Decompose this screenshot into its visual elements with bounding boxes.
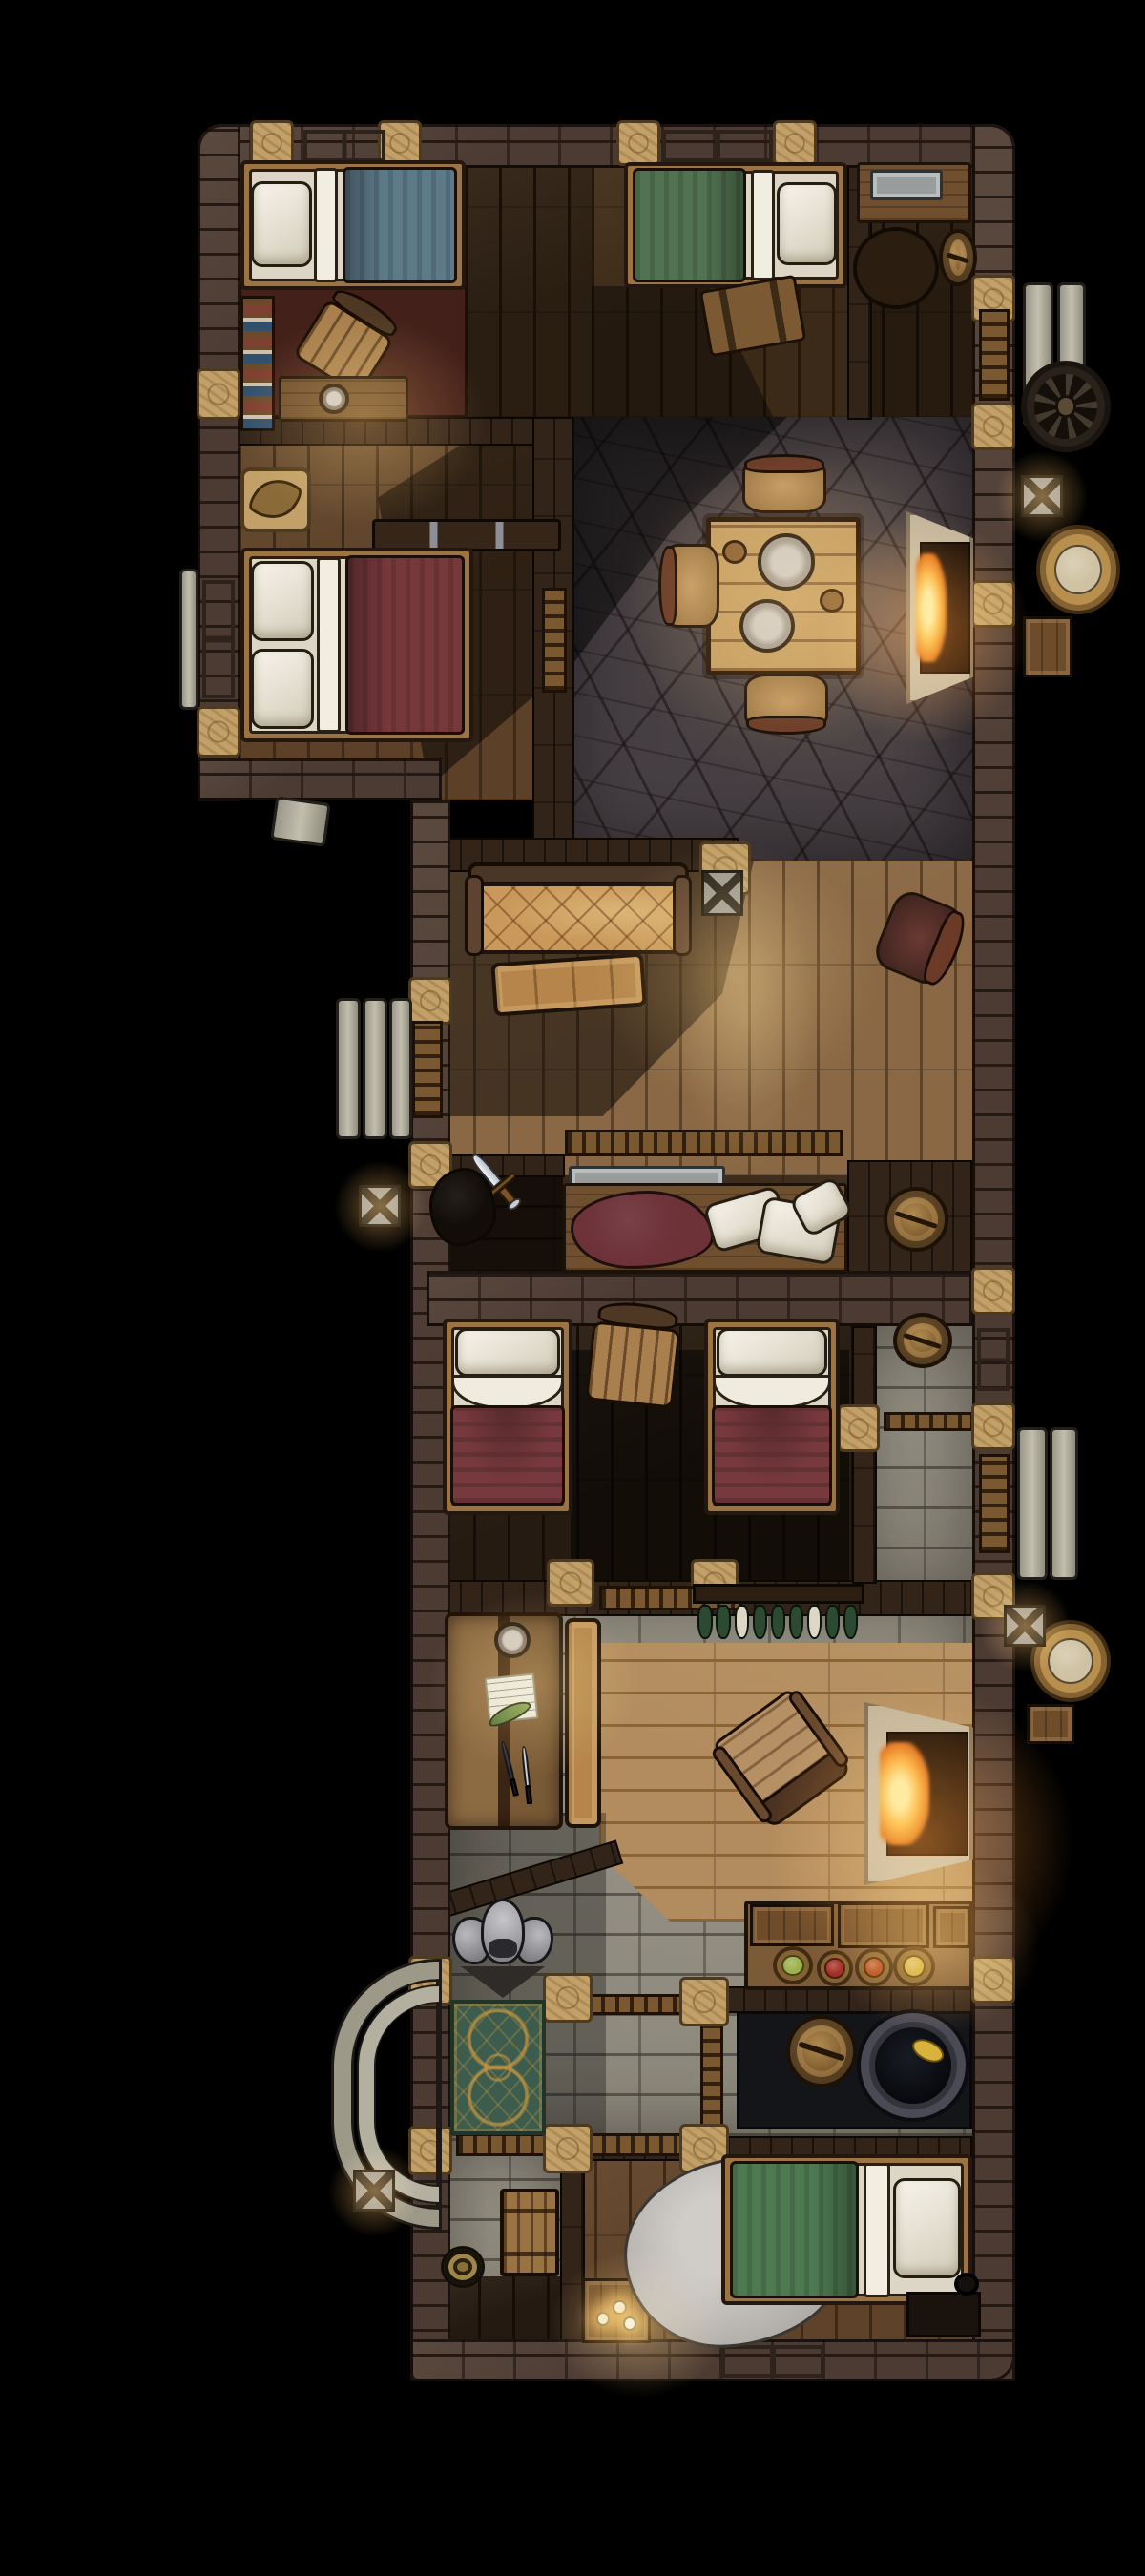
- basket-east-upper: [1036, 525, 1120, 614]
- bench-tavern: [565, 1618, 601, 1828]
- bed-twin-west-blanket: [450, 1405, 565, 1506]
- teacup-bar: [494, 1622, 531, 1658]
- wall-twin-east: [852, 1326, 877, 1584]
- post-shelf-east: [838, 1404, 880, 1452]
- bed-west-double-pillow-1: [251, 561, 314, 641]
- chair-hall-north-back: [744, 454, 824, 473]
- chair-twin-room-seat: [585, 1320, 680, 1408]
- railing-lounge: [565, 1130, 843, 1156]
- bed-west-double-blanket: [345, 555, 465, 735]
- crate-east-upper: [1023, 616, 1072, 677]
- basket-greens-contents: [781, 1955, 804, 1976]
- window-bedroom-nw: [303, 130, 385, 162]
- table-stone-hall-plate-large-1: [758, 533, 816, 590]
- keystone-east-3: [971, 580, 1015, 628]
- armor-display: [452, 1899, 553, 1998]
- bench-lounge: [490, 952, 647, 1016]
- wine-bottle-rack: [693, 1584, 864, 1643]
- post-entry-ne: [679, 1977, 729, 2026]
- crate-kitchen-1: [750, 1904, 834, 1946]
- door-east-upper: [979, 309, 1010, 401]
- post-entry-sw: [543, 2124, 593, 2173]
- steps-east-lower-2: [1050, 1427, 1078, 1580]
- fireplace-tavern-fire: [880, 1742, 929, 1845]
- pot-bed-south: [954, 2273, 979, 2296]
- table-stone-hall-plate-small-2: [820, 589, 844, 613]
- wine-bottle-rack-bottle-7: [807, 1605, 822, 1639]
- desk-alcove-glass: [870, 170, 943, 200]
- wine-bottle-rack-bottle-2: [716, 1605, 730, 1639]
- tavern-inn-battlemap: [0, 0, 1145, 2576]
- keystone-west-1: [197, 368, 240, 420]
- bed-twin-west: [443, 1319, 572, 1515]
- keystone-west-3: [408, 977, 452, 1025]
- wine-bottle-rack-bottle-8: [825, 1605, 840, 1639]
- cart-wheel-east: [1021, 361, 1111, 452]
- bed-south-sheet: [864, 2163, 890, 2297]
- crate-with-candles-candle-2: [613, 2300, 627, 2315]
- keystone-north-1: [250, 120, 294, 166]
- wine-bottle-rack-bottle-1: [697, 1605, 712, 1639]
- basket-east-upper-contents: [1054, 545, 1101, 595]
- knife-bar-2-handle: [526, 1786, 532, 1804]
- wall-lamp-lounge: [701, 870, 743, 916]
- couch-lounge-arm-right: [673, 875, 692, 956]
- cauldron-kitchen-broth: [875, 2027, 951, 2104]
- chair-hall-south: [739, 670, 834, 735]
- steps-west-3: [389, 998, 412, 1139]
- fireplace-stone-hall-fire: [916, 553, 947, 661]
- basket-tomatoes: [855, 1948, 893, 1986]
- barrel-nook-shelf: [884, 1187, 948, 1252]
- rope-coil: [441, 2246, 485, 2288]
- knife-bar-2-blade: [521, 1746, 531, 1788]
- railing-entry-north: [584, 1994, 685, 2015]
- fireplace-stone-hall: [906, 511, 973, 704]
- keystone-west-2: [197, 706, 240, 758]
- armor-display-visor: [489, 1939, 517, 1959]
- chair-hall-west: [658, 538, 723, 634]
- sack-on-floor: [429, 1168, 496, 1246]
- bed-west-double-pillow-2: [251, 649, 314, 729]
- table-alcove: [853, 227, 939, 309]
- basket-greens: [773, 1946, 813, 1984]
- railing-window-shelf: [884, 1412, 973, 1431]
- wine-bottle-rack-bottle-9: [843, 1605, 858, 1639]
- bed-south-pillow-1: [893, 2178, 961, 2278]
- bed-northwest-pillow-1: [251, 181, 312, 267]
- bed-south: [721, 2154, 972, 2305]
- bed-twin-east-blanket: [712, 1405, 832, 1506]
- blanket-nook: [571, 1191, 714, 1269]
- bed-twin-east-pillow: [717, 1328, 826, 1377]
- wine-bottle-rack-bottle-5: [771, 1605, 785, 1639]
- table-stone-hall: [706, 517, 861, 675]
- teacup-northwest: [319, 384, 349, 414]
- post-twin-west: [547, 1559, 594, 1607]
- bed-northeast: [624, 162, 847, 288]
- keystone-north-4: [773, 120, 817, 166]
- bed-west-double: [240, 548, 473, 742]
- chair-hall-west-back: [658, 546, 677, 626]
- crate-kitchen-2: [838, 1902, 929, 1948]
- keystone-east-5: [971, 1402, 1015, 1450]
- window-bedroom-ne: [662, 130, 773, 162]
- table-stone-hall-plate-large-2: [739, 599, 795, 653]
- barrel-alcove: [939, 229, 977, 286]
- wall-lamp-west-south: [353, 2170, 395, 2212]
- bed-northeast-sheet: [751, 170, 775, 281]
- wall-lamp-east-lower: [1004, 1605, 1046, 1647]
- basket-grain-contents: [903, 1955, 926, 1978]
- wall-south-bedroom-w: [198, 758, 442, 800]
- bed-northwest: [240, 160, 466, 290]
- window-bedroom-s: [721, 2345, 824, 2378]
- bed-northeast-blanket: [633, 168, 747, 281]
- window-tavern-east: [977, 1328, 1010, 1391]
- couch-lounge-cushion: [473, 883, 683, 954]
- steps-east-lower-1: [1017, 1427, 1048, 1580]
- wall-lamp-west-mid: [359, 1185, 401, 1227]
- door-west: [412, 1021, 443, 1118]
- steps-west-1: [336, 998, 361, 1139]
- bed-south-blanket: [730, 2161, 859, 2298]
- couch-lounge-arm-left: [465, 875, 484, 956]
- wall-east: [972, 124, 1015, 2381]
- bookshelf-northwest: [240, 296, 275, 431]
- keystone-north-3: [616, 120, 660, 166]
- basket-east-lower-contents: [1048, 1638, 1093, 1684]
- chair-hall-north: [737, 454, 832, 517]
- basket-grain: [893, 1946, 935, 1986]
- crate-east-lower: [1027, 1704, 1074, 1744]
- chair-hall-south-back: [746, 716, 826, 735]
- door-stone-hall: [542, 588, 567, 693]
- knife-bar-1-handle: [510, 1778, 518, 1797]
- barrel-window-shelf: [893, 1313, 952, 1368]
- couch-lounge: [471, 868, 685, 956]
- door-entry: [500, 2189, 559, 2276]
- wall-plaque-bedroom-w: [240, 467, 311, 532]
- railing-entry-east: [700, 2015, 723, 2131]
- ledge-west: [179, 569, 198, 710]
- crate-with-candles-candle-3: [623, 2316, 637, 2331]
- floor-hall-nw: [465, 160, 593, 418]
- wine-bottle-rack-rack-bar: [693, 1584, 864, 1604]
- bed-northwest-blanket: [343, 167, 458, 284]
- armor-display-base: [460, 1966, 545, 1998]
- crate-kitchen-3: [933, 1906, 971, 1948]
- window-bedroom-w: [202, 580, 235, 698]
- chest-bedroom-w: [372, 519, 561, 551]
- chair-twin-room: [579, 1302, 689, 1413]
- wine-bottle-rack-bottle-6: [789, 1605, 803, 1639]
- wall-west-upper: [198, 124, 240, 801]
- bed-northwest-sheet: [314, 168, 338, 282]
- bed-northeast-pillow-1: [777, 182, 837, 265]
- cauldron-kitchen: [857, 2009, 969, 2122]
- wine-bottle-rack-bottle-4: [753, 1605, 767, 1639]
- bed-twin-east: [704, 1319, 840, 1515]
- rug-entry: [450, 2000, 546, 2135]
- keystone-east-7: [971, 1956, 1015, 2004]
- fireplace-tavern: [864, 1702, 973, 1885]
- door-mat-west: [270, 796, 331, 847]
- keystone-east-2: [971, 403, 1015, 450]
- wall-lamp-east-upper: [1021, 475, 1063, 517]
- table-stone-hall-plate-small-1: [722, 540, 747, 564]
- basket-berries-contents: [824, 1958, 844, 1978]
- wine-bottle-rack-bottle-3: [735, 1605, 749, 1639]
- door-east-lower: [979, 1454, 1010, 1553]
- basket-berries: [817, 1950, 853, 1986]
- bed-twin-west-pillow: [455, 1328, 560, 1377]
- crate-with-candles-candle-1: [596, 2312, 611, 2326]
- bed-west-double-sheet: [317, 557, 342, 733]
- barrel-kitchen: [786, 2015, 857, 2088]
- table-bed-south: [906, 2292, 981, 2337]
- steps-west-2: [363, 998, 387, 1139]
- keystone-east-4: [971, 1267, 1015, 1315]
